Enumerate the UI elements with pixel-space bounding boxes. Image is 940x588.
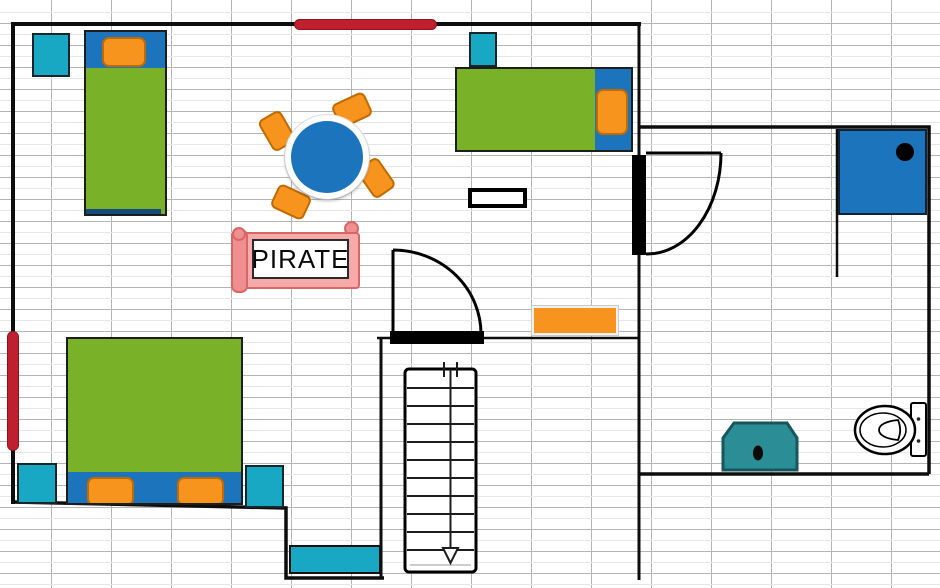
nightstand[interactable] [32, 33, 70, 77]
toilet[interactable] [855, 403, 926, 456]
window-left[interactable] [7, 331, 19, 451]
bed-pillow [87, 477, 134, 505]
nightstand[interactable] [17, 463, 57, 504]
single-bed-left[interactable] [84, 30, 167, 216]
table-top [291, 121, 363, 193]
doormat[interactable] [289, 545, 381, 574]
door-jamb [632, 155, 646, 255]
single-bed-right[interactable] [455, 67, 633, 152]
window-top[interactable] [294, 19, 437, 30]
rug[interactable] [532, 306, 618, 335]
sink-drain [753, 446, 763, 461]
double-bed[interactable] [66, 337, 243, 505]
bathroom-door[interactable] [632, 153, 721, 255]
nightstand[interactable] [469, 32, 497, 67]
round-table[interactable] [285, 115, 369, 199]
shower[interactable] [838, 129, 927, 215]
scroll-curl-icon [232, 227, 246, 241]
bed-pillow [102, 37, 146, 67]
bed-footboard [86, 209, 161, 214]
door-jamb [390, 331, 484, 344]
bed-pillow [596, 89, 628, 135]
door-swing-arc [393, 250, 481, 335]
staircase[interactable] [405, 362, 476, 572]
pirate-sign-text: PIRATE [252, 239, 349, 279]
bathroom-sink[interactable] [723, 423, 797, 470]
pirate-sign[interactable]: PIRATE [231, 226, 359, 290]
shower-drain-icon [896, 143, 914, 161]
door-swing-arc [646, 153, 721, 254]
floor-plan-canvas: PIRATE [0, 0, 940, 588]
bed-pillow [177, 477, 224, 505]
nightstand[interactable] [245, 465, 284, 508]
bedroom-door[interactable] [390, 250, 484, 344]
picture-frame[interactable] [468, 188, 527, 208]
